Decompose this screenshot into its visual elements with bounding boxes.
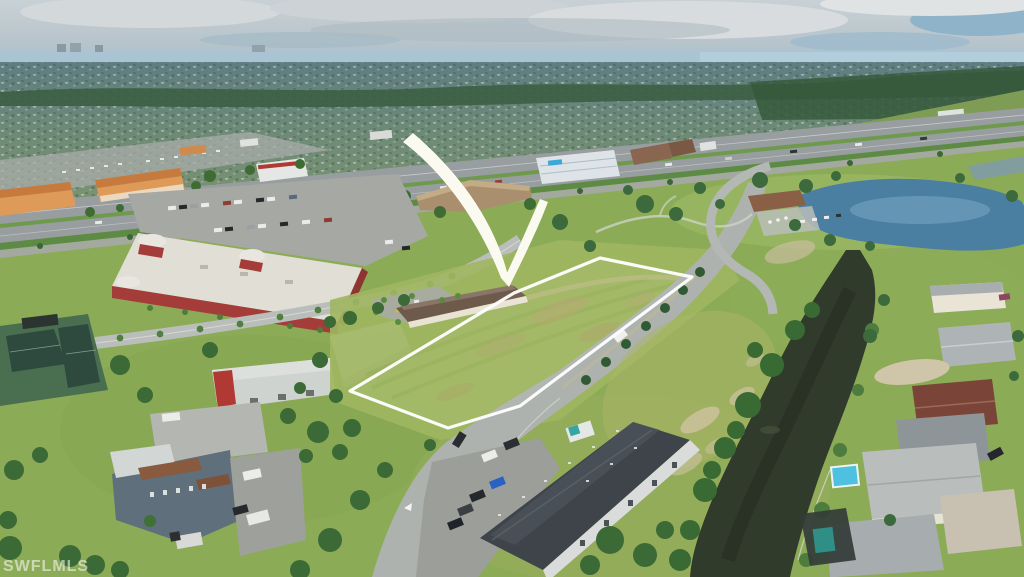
pool <box>831 465 859 488</box>
watermark: SWFLMLS <box>3 558 89 575</box>
aerial-photo: SWFLMLS <box>0 0 1024 577</box>
